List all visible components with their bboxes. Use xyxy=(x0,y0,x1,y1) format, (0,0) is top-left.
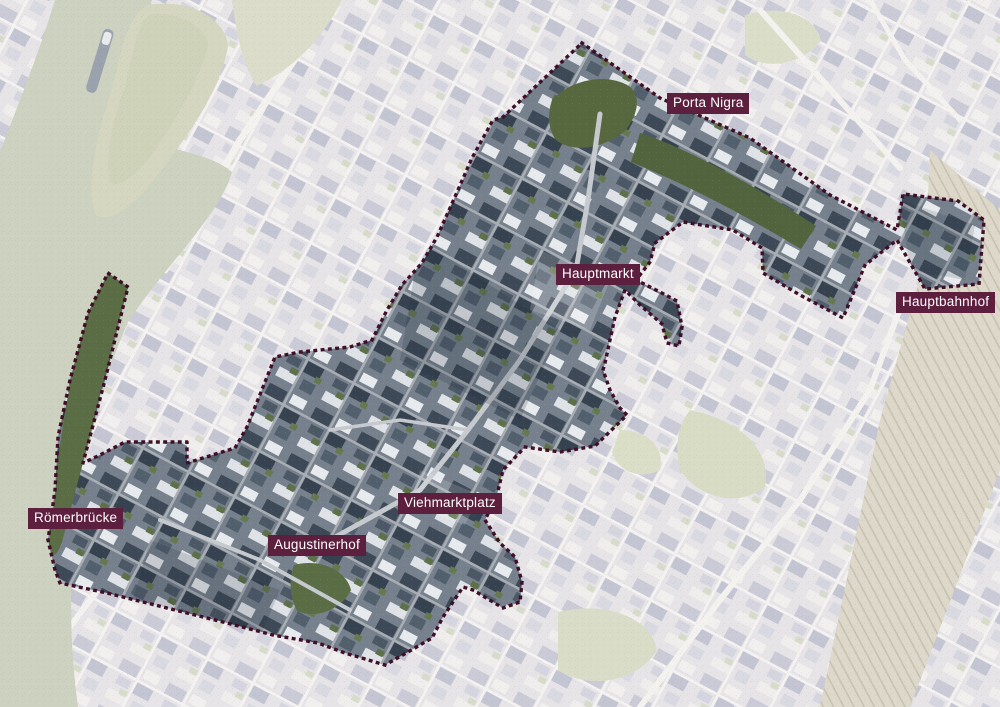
map-label-roemerbruecke: Römerbrücke xyxy=(28,508,123,529)
map-label-hauptmarkt: Hauptmarkt xyxy=(556,264,640,285)
map-graphic xyxy=(0,0,1000,707)
map-label-viehmarktplatz: Viehmarktplatz xyxy=(398,493,502,514)
map-label-hauptbahnhof: Hauptbahnhof xyxy=(896,292,995,313)
aerial-map-of-trier: Porta Nigra Hauptmarkt Hauptbahnhof Röme… xyxy=(0,0,1000,707)
map-label-porta-nigra: Porta Nigra xyxy=(667,93,749,114)
map-label-augustinerhof: Augustinerhof xyxy=(268,535,366,556)
noise-overlay xyxy=(0,0,1000,707)
